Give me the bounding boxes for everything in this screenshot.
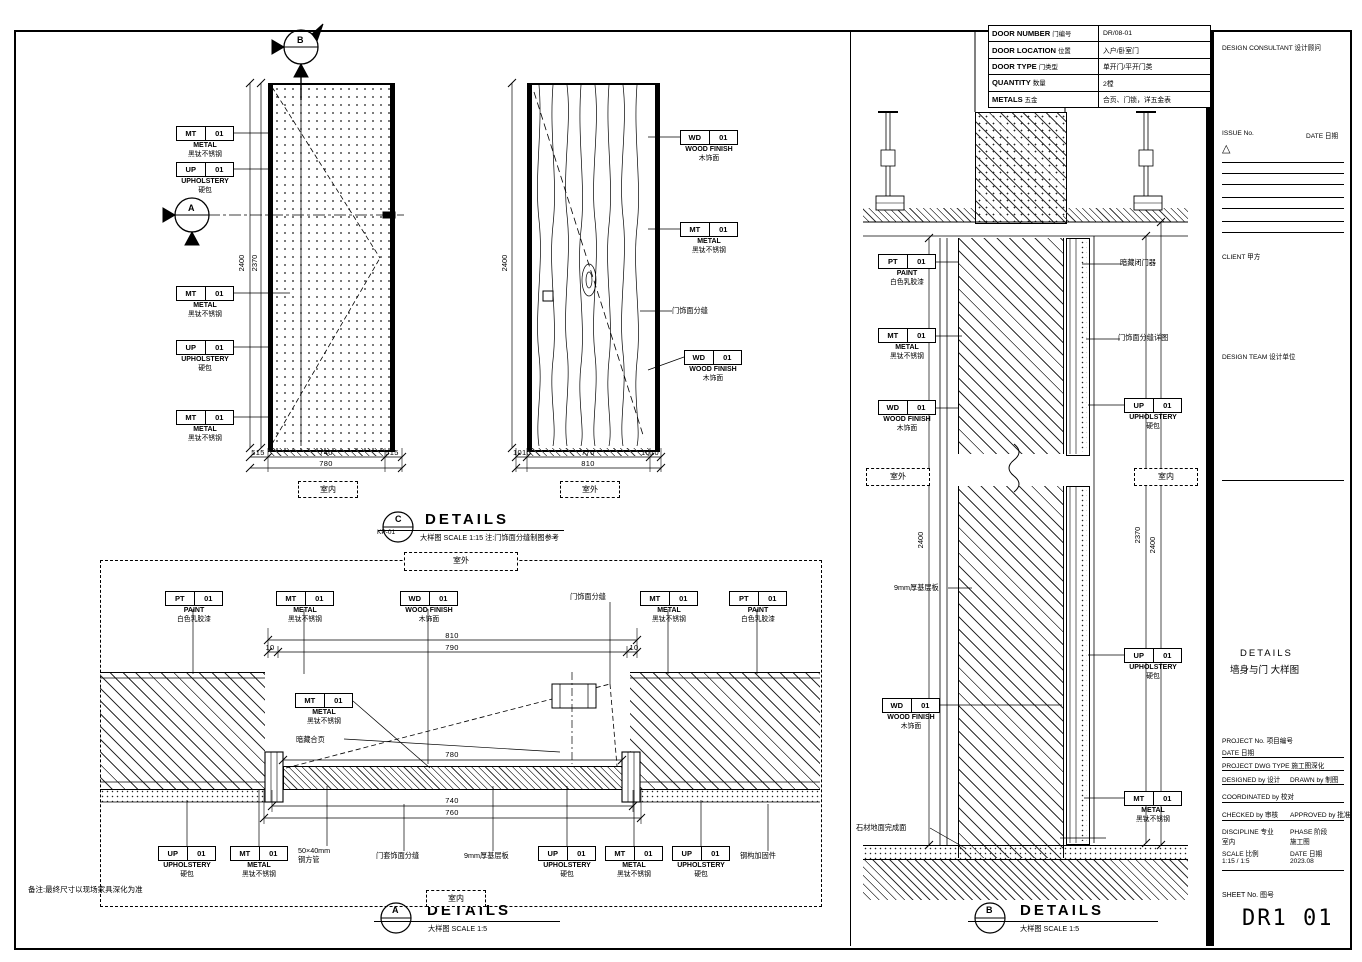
material-callout-tag: MT01	[176, 126, 234, 141]
material-name-en: METAL	[640, 607, 698, 616]
material-name-cn: 黑钛不锈钢	[680, 247, 738, 255]
material-callout-tag: MT01	[878, 328, 936, 343]
material-callout-tag: WD01	[680, 130, 738, 145]
detail-b-underline	[968, 921, 1158, 922]
text-callout: 钢构加固件	[740, 851, 776, 860]
detail-b-letter: B	[986, 905, 993, 915]
material-callout-tag: UP01	[176, 340, 234, 355]
table-row-label: METALS五金	[989, 92, 1099, 107]
material-name-cn: 黑钛不锈钢	[230, 871, 288, 879]
material-name-en: METAL	[230, 862, 288, 871]
detail-c-scale: 大样图 SCALE 1:15 注:门饰面分缝制图参考	[420, 533, 559, 543]
section-marker-b-letter: B	[297, 35, 304, 45]
material-callout-tag: UP01	[176, 162, 234, 177]
material-name-en: UPHOLSTERY	[1124, 414, 1182, 423]
dwg-type-label: PROJECT DWG TYPE 施工图深化	[1222, 760, 1324, 770]
material-name-en: METAL	[1124, 807, 1182, 816]
dim-label: 2370	[1133, 515, 1143, 555]
material-callout-tag: MT01	[640, 591, 698, 606]
text-callout: 门套饰面分缝	[376, 851, 419, 860]
table-row: DOOR LOCATION位置入户/卧室门	[989, 42, 1210, 58]
material-name-cn: 硬包	[176, 365, 234, 373]
titleblock-logo: DESIGN CONSULTANT 设计顾问	[1222, 42, 1321, 52]
material-callout: WD01WOOD FINISH木饰面	[680, 130, 738, 163]
table-row-label: QUANTITY数量	[989, 75, 1099, 90]
dim-label: 2400	[237, 243, 247, 283]
detail-b-title: DETAILS	[1020, 902, 1104, 919]
material-callout-tag: MT01	[680, 222, 738, 237]
material-callout: MT01METAL黑钛不锈钢	[640, 591, 698, 624]
text-callout: 暗藏闭门器	[1120, 258, 1156, 267]
detail-a-letter: A	[392, 905, 399, 915]
material-callout-tag: WD01	[400, 591, 458, 606]
material-name-en: UPHOLSTERY	[158, 862, 216, 871]
table-row-value: 单开门/平开门类	[1099, 61, 1210, 71]
material-callout-tag: UP01	[1124, 398, 1182, 413]
material-callout-tag: MT01	[605, 846, 663, 861]
table-row-value: DR/08-01	[1099, 30, 1210, 37]
material-name-en: UPHOLSTERY	[538, 862, 596, 871]
dim-label: 740	[308, 448, 344, 457]
sheet-no-label: SHEET No. 图号	[1222, 890, 1274, 900]
material-name-cn: 木饰面	[882, 723, 940, 731]
material-name-en: WOOD FINISH	[400, 607, 458, 616]
dim-label: 1010	[636, 448, 664, 457]
material-name-cn: 硬包	[538, 871, 596, 879]
material-callout: MT01METAL黑钛不锈钢	[276, 591, 334, 624]
title-block: DESIGN CONSULTANT 设计顾问 ISSUE No. DATE 日期…	[1214, 30, 1350, 946]
drawn-label: DRAWN by 制图	[1290, 774, 1338, 784]
material-name-en: METAL	[276, 607, 334, 616]
material-name-en: METAL	[176, 426, 234, 435]
dim-label: 810	[570, 459, 606, 468]
client-label: CLIENT 甲方	[1222, 251, 1260, 261]
material-callout: MT01METAL黑钛不锈钢	[295, 693, 353, 726]
material-name-en: UPHOLSTERY	[176, 178, 234, 187]
text-callout: 门饰面分缝	[672, 306, 708, 315]
table-row-value: 合页、门锁，详五金表	[1099, 94, 1210, 104]
dim-label: 10	[626, 643, 642, 652]
table-row-value: 2樘	[1099, 78, 1210, 88]
material-name-en: METAL	[878, 344, 936, 353]
material-callout-tag: WD01	[882, 698, 940, 713]
material-name-en: UPHOLSTERY	[1124, 664, 1182, 673]
material-callout: UP01UPHOLSTERY硬包	[672, 846, 730, 879]
dim-label: 1010	[508, 448, 536, 457]
revision-triangle-icon: △	[1222, 142, 1230, 155]
material-callout-tag: WD01	[684, 350, 742, 365]
material-callout: MT01METAL黑钛不锈钢	[878, 328, 936, 361]
detail-a-scale: 大样图 SCALE 1:5	[428, 924, 487, 934]
dim-label: 10	[262, 643, 278, 652]
material-callout: UP01UPHOLSTERY硬包	[538, 846, 596, 879]
material-callout: UP01UPHOLSTERY硬包	[1124, 648, 1182, 681]
material-callout-tag: PT01	[165, 591, 223, 606]
dim-label: 2400	[916, 520, 926, 560]
dim-label: 515	[246, 448, 270, 457]
material-name-en: METAL	[295, 709, 353, 718]
phase-value: 施工图	[1290, 836, 1310, 846]
drawing-sheet: B A 2400 2370 515 740 515 780 2400 1010 …	[0, 0, 1362, 962]
detail-c-title: DETAILS	[425, 511, 509, 528]
view-tag-interior: 室内	[298, 481, 358, 498]
material-name-cn: 木饰面	[680, 155, 738, 163]
material-name-cn: 黑钛不锈钢	[176, 435, 234, 443]
material-name-cn: 木饰面	[400, 616, 458, 624]
material-callout-tag: UP01	[158, 846, 216, 861]
phase-label: PHASE 阶段	[1290, 826, 1327, 836]
material-name-en: UPHOLSTERY	[672, 862, 730, 871]
discipline-value: 室内	[1222, 836, 1235, 846]
material-name-en: METAL	[680, 238, 738, 247]
table-row-value: 入户/卧室门	[1099, 45, 1210, 55]
material-name-en: PAINT	[165, 607, 223, 616]
material-name-cn: 木饰面	[878, 425, 936, 433]
coordinated-label: COORDINATED by 校对	[1222, 791, 1294, 801]
text-callout: 石材地面完成面	[856, 823, 906, 832]
material-name-cn: 白色乳胶漆	[165, 616, 223, 624]
view-tag-exterior: 室外	[404, 552, 518, 571]
material-callout: PT01PAINT白色乳胶漆	[165, 591, 223, 624]
material-name-cn: 硬包	[1124, 423, 1182, 431]
material-callout: UP01UPHOLSTERY硬包	[176, 162, 234, 195]
scale-label: SCALE 比例	[1222, 848, 1259, 858]
table-row: METALS五金合页、门锁，详五金表	[989, 92, 1210, 107]
designed-label: DESIGNED by 设计	[1222, 774, 1280, 784]
material-name-en: WOOD FINISH	[684, 366, 742, 375]
material-callout: MT01METAL黑钛不锈钢	[176, 410, 234, 443]
material-callout-tag: MT01	[276, 591, 334, 606]
view-tag-interior: 室内	[426, 890, 486, 907]
view-tag-exterior: 室外	[560, 481, 620, 498]
material-callout: MT01METAL黑钛不锈钢	[605, 846, 663, 879]
view-tag-exterior: 室外	[866, 468, 930, 486]
material-callout-tag: MT01	[1124, 791, 1182, 806]
table-row-label: DOOR NUMBER门编号	[989, 26, 1099, 41]
material-callout-tag: MT01	[176, 286, 234, 301]
detail-a-underline	[374, 921, 560, 922]
material-callout: PT01PAINT白色乳胶漆	[878, 254, 936, 287]
detail-b-scale: 大样图 SCALE 1:5	[1020, 924, 1079, 934]
table-row-label: DOOR LOCATION位置	[989, 42, 1099, 57]
dim-label: 770	[570, 448, 606, 457]
material-name-en: METAL	[605, 862, 663, 871]
material-callout-tag: UP01	[538, 846, 596, 861]
material-callout: MT01METAL黑钛不锈钢	[176, 286, 234, 319]
scale-value: 1:15 / 1:5	[1222, 858, 1250, 865]
dim-label: 810	[432, 631, 472, 640]
material-name-en: UPHOLSTERY	[176, 356, 234, 365]
material-name-cn: 硬包	[176, 187, 234, 195]
approved-label: APPROVED by 批准	[1290, 809, 1350, 819]
material-name-cn: 白色乳胶漆	[878, 279, 936, 287]
material-name-en: WOOD FINISH	[680, 146, 738, 155]
dim-label: 780	[308, 459, 344, 468]
material-name-en: PAINT	[729, 607, 787, 616]
material-name-cn: 黑钛不锈钢	[605, 871, 663, 879]
view-tag-interior: 室内	[1134, 468, 1198, 486]
material-name-cn: 黑钛不锈钢	[878, 353, 936, 361]
material-name-cn: 硬包	[158, 871, 216, 879]
material-name-en: METAL	[176, 302, 234, 311]
drawing-note: 备注:最终尺寸以现场家具深化为准	[28, 884, 143, 895]
dim-label: 2370	[250, 243, 260, 283]
text-callout: 门饰面分缝	[570, 592, 606, 601]
material-callout: WD01WOOD FINISH木饰面	[400, 591, 458, 624]
text-callout: 门饰面分缝详图	[1118, 333, 1168, 342]
issue-label: ISSUE No.	[1222, 130, 1254, 137]
material-callout: WD01WOOD FINISH木饰面	[684, 350, 742, 383]
issue-date-label: DATE 日期	[1306, 130, 1338, 140]
material-callout: MT01METAL黑钛不锈钢	[176, 126, 234, 159]
material-name-en: WOOD FINISH	[878, 416, 936, 425]
material-name-cn: 黑钛不锈钢	[640, 616, 698, 624]
dim-label: 790	[432, 643, 472, 652]
project-no-label: PROJECT No. 项目编号	[1222, 735, 1293, 745]
material-callout: MT01METAL黑钛不锈钢	[680, 222, 738, 255]
material-name-en: METAL	[176, 142, 234, 151]
material-callout-tag: MT01	[230, 846, 288, 861]
material-name-en: WOOD FINISH	[882, 714, 940, 723]
material-callout-tag: MT01	[176, 410, 234, 425]
text-callout: 暗藏合页	[296, 735, 325, 744]
material-name-cn: 黑钛不锈钢	[295, 718, 353, 726]
drawing-title-cn: 墙身与门 大样图	[1230, 662, 1299, 676]
material-name-cn: 硬包	[672, 871, 730, 879]
discipline-label: DISCIPLINE 专业	[1222, 826, 1274, 836]
detail-c-underline	[378, 530, 564, 531]
material-name-cn: 黑钛不锈钢	[276, 616, 334, 624]
material-callout: PT01PAINT白色乳胶漆	[729, 591, 787, 624]
drawing-title-en: DETAILS	[1240, 648, 1293, 659]
detail-c-letter: C	[395, 514, 402, 524]
table-row-label: DOOR TYPE门类型	[989, 59, 1099, 74]
material-callout-tag: WD01	[878, 400, 936, 415]
material-callout-tag: UP01	[1124, 648, 1182, 663]
table-row: DOOR NUMBER门编号DR/08-01	[989, 26, 1210, 42]
design-team-label: DESIGN TEAM 设计单位	[1222, 351, 1296, 361]
dim-label: 2400	[1148, 525, 1158, 565]
text-callout: 50×40mm 钢方管	[298, 846, 330, 865]
material-callout: UP01UPHOLSTERY硬包	[158, 846, 216, 879]
door-schedule-table: DOOR NUMBER门编号DR/08-01DOOR LOCATION位置入户/…	[988, 25, 1211, 108]
checked-label: CHECKED by 审核	[1222, 809, 1278, 819]
material-callout: WD01WOOD FINISH木饰面	[878, 400, 936, 433]
dim-label: 780	[432, 750, 472, 759]
detail-c-ref: KP-01	[377, 529, 395, 536]
material-callout: UP01UPHOLSTERY硬包	[176, 340, 234, 373]
material-callout: MT01METAL黑钛不锈钢	[1124, 791, 1182, 824]
material-name-cn: 白色乳胶漆	[729, 616, 787, 624]
date-label: DATE 日期	[1222, 747, 1254, 757]
date-value: 2023.08	[1290, 858, 1314, 865]
material-callout-tag: PT01	[878, 254, 936, 269]
text-callout: 9mm厚基层板	[464, 851, 509, 860]
material-name-cn: 黑钛不锈钢	[176, 311, 234, 319]
material-callout-tag: MT01	[295, 693, 353, 708]
sheet-number: DR1 01	[1242, 906, 1333, 931]
material-callout: MT01METAL黑钛不锈钢	[230, 846, 288, 879]
material-callout: UP01UPHOLSTERY硬包	[1124, 398, 1182, 431]
material-name-cn: 木饰面	[684, 375, 742, 383]
table-row: DOOR TYPE门类型单开门/平开门类	[989, 59, 1210, 75]
material-name-en: PAINT	[878, 270, 936, 279]
material-callout-tag: PT01	[729, 591, 787, 606]
material-callout-tag: UP01	[672, 846, 730, 861]
dim-label: 760	[432, 808, 472, 817]
date-label2: DATE 日期	[1290, 848, 1322, 858]
dim-label: 2400	[500, 243, 510, 283]
material-name-cn: 黑钛不锈钢	[176, 151, 234, 159]
dim-label: 515	[380, 448, 404, 457]
section-marker-a-letter: A	[188, 203, 195, 213]
material-name-cn: 黑钛不锈钢	[1124, 816, 1182, 824]
dim-label: 740	[432, 796, 472, 805]
text-callout: 9mm厚基层板	[894, 583, 939, 592]
material-callout: WD01WOOD FINISH木饰面	[882, 698, 940, 731]
table-row: QUANTITY数量2樘	[989, 75, 1210, 91]
material-name-cn: 硬包	[1124, 673, 1182, 681]
